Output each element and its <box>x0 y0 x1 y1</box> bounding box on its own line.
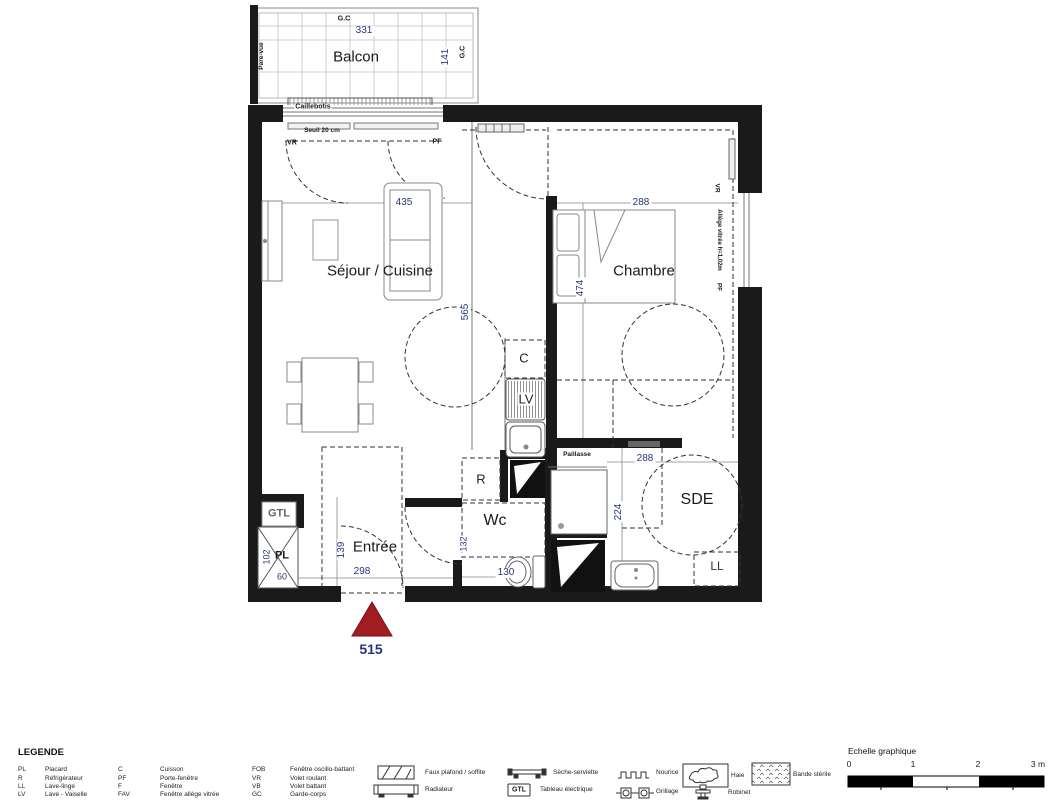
refrigerateur-label: R <box>476 473 485 486</box>
legend-label: Placard <box>45 767 67 774</box>
placard-width-dim: 60 <box>276 573 288 582</box>
legend-label: Lave - Vaiselle <box>45 792 87 799</box>
legend-abbr: VB <box>252 784 261 791</box>
wc-depth-dim: 132 <box>460 535 469 552</box>
scale-tick-1: 1 <box>911 760 916 769</box>
room-label-sde: SDE <box>681 492 714 508</box>
room-label-balcon: Balcon <box>333 50 379 65</box>
legend-label: Porte-fenêtre <box>160 776 198 783</box>
sejour-depth-dim: 565 <box>461 302 471 323</box>
legend-label: Volet roulant <box>290 776 326 783</box>
scale-tick-2: 2 <box>976 760 981 769</box>
legend-abbr: FAV <box>118 792 130 799</box>
legend-label: Fenêtre oscillo-battant <box>290 767 354 774</box>
legend-symbol-radiateur <box>374 785 418 797</box>
placard-depth-dim: 102 <box>263 548 272 565</box>
gtl-plan-label: GTL <box>268 509 290 520</box>
bed <box>553 210 675 303</box>
legend-symbol-nourice <box>618 772 649 778</box>
legend-abbr: PF <box>118 776 126 783</box>
kitchen-sink <box>506 422 545 457</box>
legend-label: Réfrigérateur <box>45 776 83 783</box>
cuisson-label: C <box>519 352 528 365</box>
tv-unit <box>262 201 282 281</box>
legend-label-faux-plafond: Faux plafond / soffite <box>425 770 485 777</box>
pare-vue-label: Pare-vue <box>259 42 266 69</box>
chambre-width-dim: 288 <box>631 198 652 208</box>
room-label-wc: Wc <box>483 513 506 529</box>
scale-title: Echelle graphique <box>848 746 916 756</box>
legend-label: Volet battant <box>290 784 326 791</box>
scale-tick-0: 0 <box>847 760 852 769</box>
legend-title: LEGENDE <box>18 747 64 758</box>
dining-table <box>287 358 373 432</box>
room-label-chambre: Chambre <box>613 264 675 279</box>
legend-label-tableau: Tableau électrique <box>540 787 593 794</box>
legend-label-nourice: Nourice <box>656 770 678 777</box>
room-label-sejour: Séjour / Cuisine <box>327 264 433 279</box>
vr-right-label: VR <box>713 183 720 192</box>
balcony-depth-dim: 141 <box>441 47 451 68</box>
sejour-width-dim: 435 <box>394 198 415 208</box>
entree-width-dim: 298 <box>352 567 373 577</box>
pf-top-label: PF <box>433 139 442 146</box>
caillebotis-label: Caillebotis <box>294 104 331 111</box>
legend-label: Cuisson <box>160 767 183 774</box>
sde-depth-dim: 224 <box>614 502 624 523</box>
legend-symbol-grillage <box>616 788 654 798</box>
legend-label-haie: Haie <box>731 773 744 780</box>
paillasse-label: Paillasse <box>563 452 591 459</box>
legend-label: Fenêtre <box>160 784 182 791</box>
lot-number: 515 <box>359 642 382 656</box>
shower <box>551 470 607 534</box>
legend-label: Lave-linge <box>45 784 75 791</box>
legend-abbr: GC <box>252 792 262 799</box>
lave-linge-label: LL <box>710 560 723 572</box>
seuil-label: Seuil 20 cm <box>304 128 340 135</box>
washbasin <box>611 561 658 590</box>
legend-label-grillage: Grillage <box>656 789 678 796</box>
legend-abbr: VR <box>252 776 261 783</box>
legend-label-robinet: Robinet <box>728 790 750 797</box>
scale-tick-3: 3 m <box>1031 760 1045 769</box>
scale-bar <box>848 776 1044 790</box>
floor-plan-page: G.C 331 Balcon 141 G.C Pare-vue Caillebo… <box>0 0 1061 800</box>
allege-label: Allège vitrée h=1,02m <box>716 209 722 271</box>
placard-label: PL <box>275 551 289 562</box>
sde-width-dim: 288 <box>635 454 656 464</box>
entree-depth-dim: 139 <box>337 540 347 561</box>
pf-right-label: PF <box>715 283 722 291</box>
legend-label: Fenêtre allège vitrée <box>160 792 219 799</box>
legend-label-seche-serviette: Sèche-serviette <box>553 770 598 777</box>
legend-symbol-bande-sterile <box>752 763 790 785</box>
legend-abbr: C <box>118 767 123 774</box>
legend-symbol-haie <box>683 764 728 787</box>
legend-label-radiateur: Radiateur <box>425 787 453 794</box>
legend-abbr: LV <box>18 792 25 799</box>
balcony-gc-side-label: G.C <box>460 46 467 58</box>
legend-label: Garde-corps <box>290 792 326 799</box>
legend-label-bande-sterile: Bande stérile <box>793 772 831 779</box>
legend-abbr: FOB <box>252 767 265 774</box>
balcony-gc-top-label: G.C <box>338 16 350 23</box>
legend-symbol-seche-serviette <box>508 769 546 778</box>
legend-abbr: F <box>118 784 122 791</box>
legend-abbr: PL <box>18 767 26 774</box>
lave-vaisselle-label: LV <box>518 393 535 406</box>
vr-top-label: VR <box>287 140 297 147</box>
lot-marker-triangle <box>352 602 392 636</box>
balcony-width-dim: 331 <box>354 26 375 36</box>
side-table <box>313 220 338 260</box>
legend-abbr: LL <box>18 784 25 791</box>
wc-width-dim: 130 <box>496 568 517 578</box>
legend-abbr: R <box>18 776 23 783</box>
room-label-entree: Entrée <box>353 540 397 555</box>
legend-symbol-faux-plafond <box>378 766 414 779</box>
chambre-depth-dim: 474 <box>576 278 586 299</box>
legend-gtl-badge: GTL <box>512 787 526 794</box>
